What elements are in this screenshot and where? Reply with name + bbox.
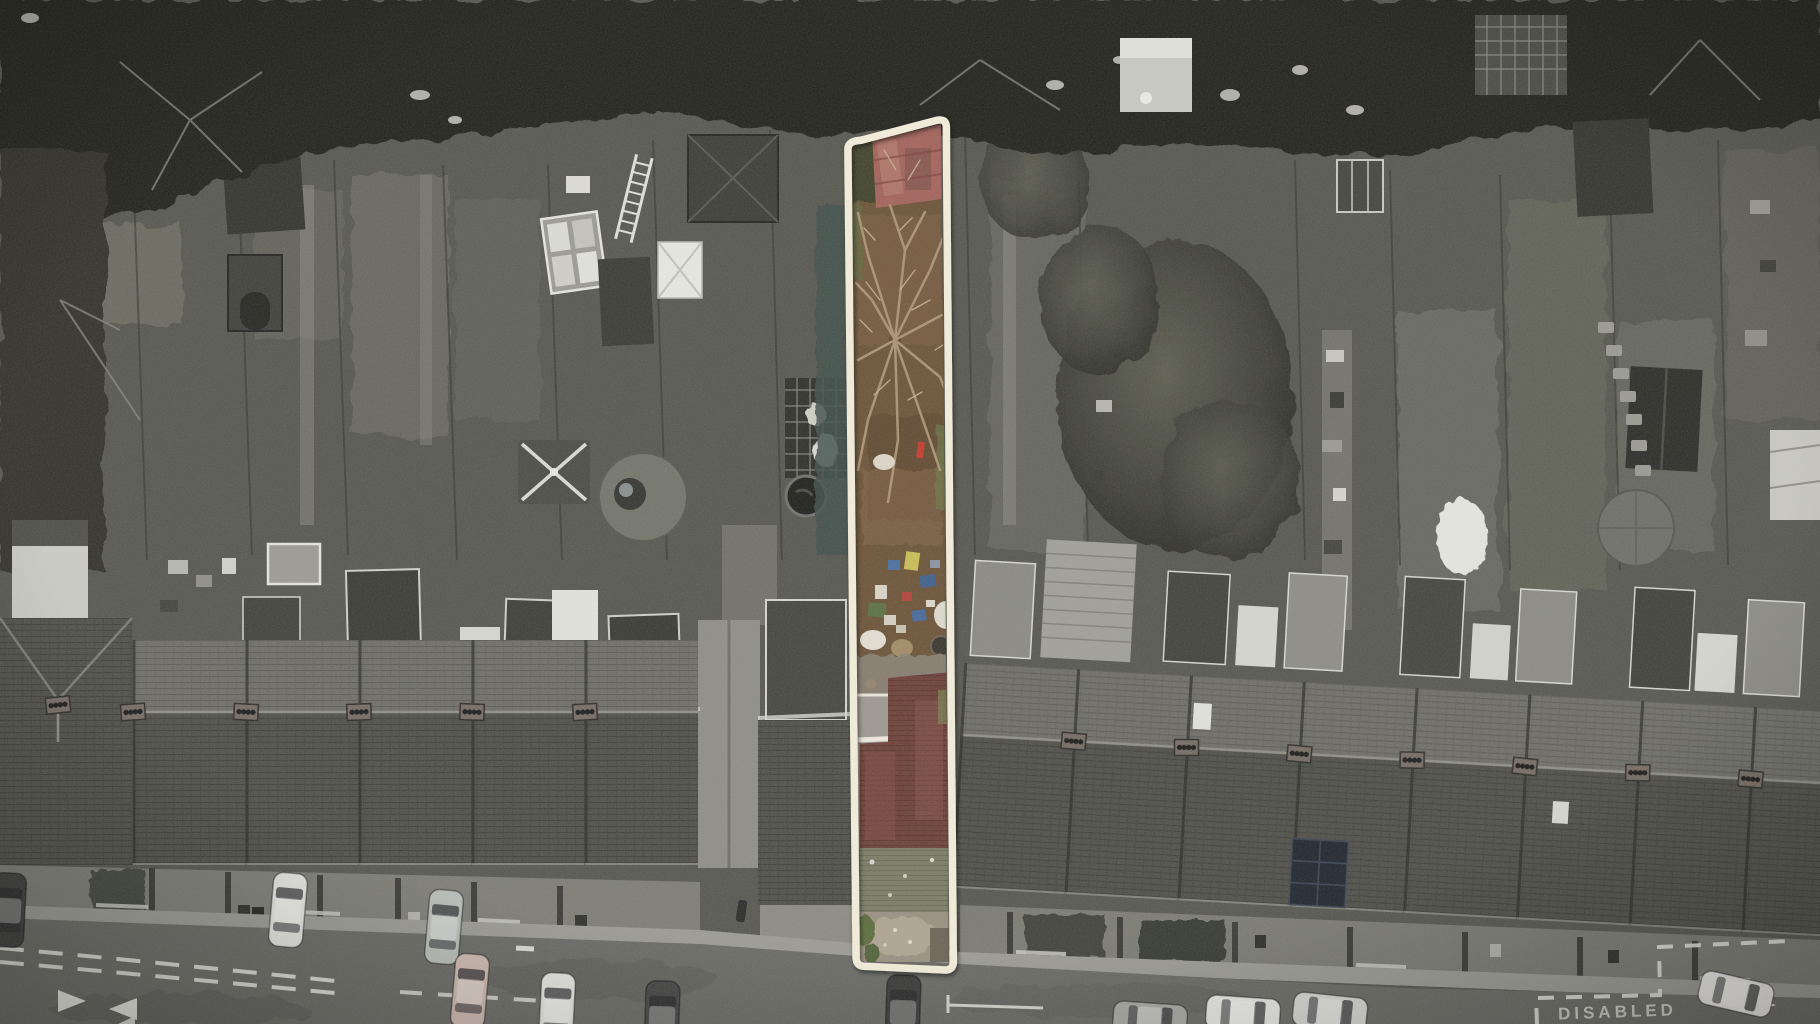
aerial-drone-photo: DISABLED: [0, 0, 1820, 1024]
vignette-overlay: [0, 0, 1820, 1024]
